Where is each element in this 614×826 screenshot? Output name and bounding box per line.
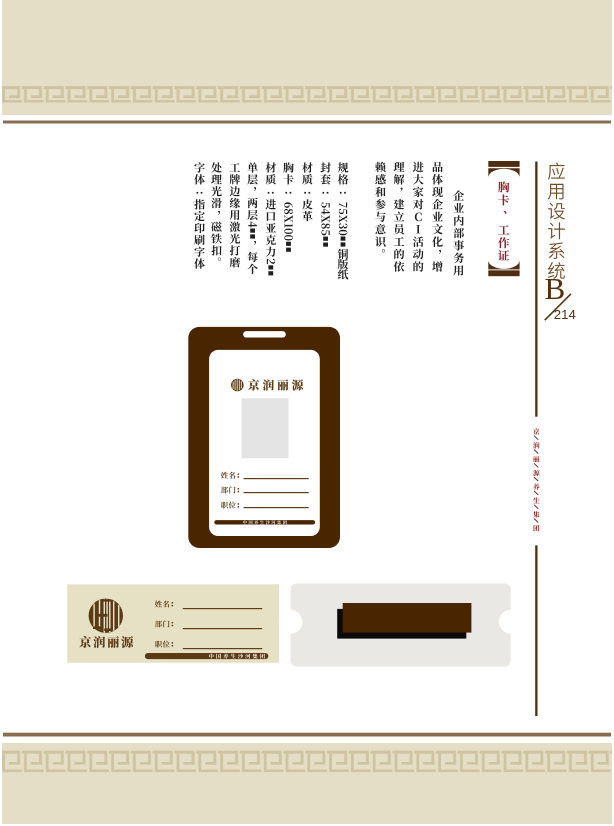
svg-text:B: B xyxy=(545,271,566,306)
svg-text:214: 214 xyxy=(554,307,576,322)
